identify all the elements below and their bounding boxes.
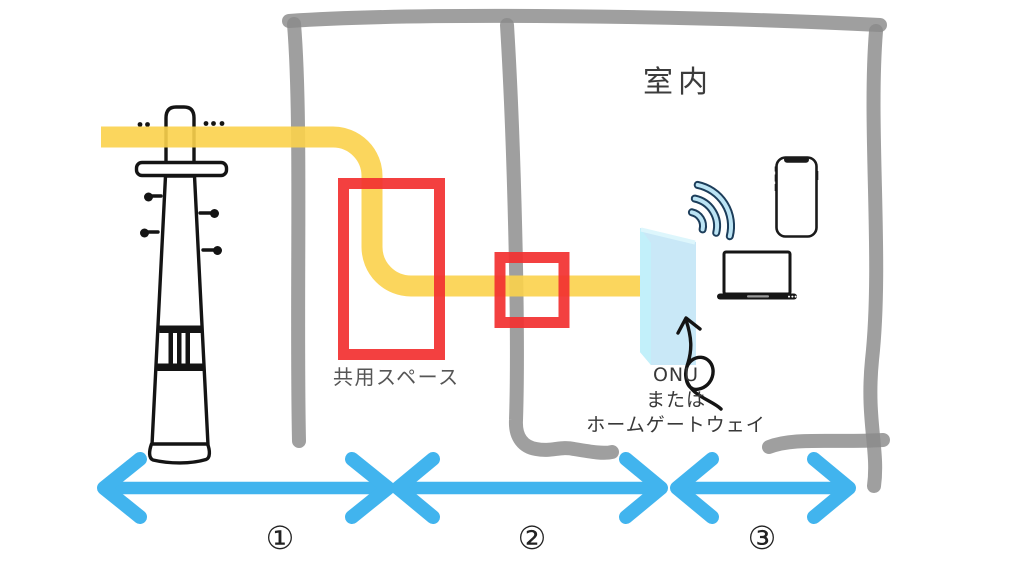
onu-label-line1: ONU bbox=[556, 363, 796, 388]
section-2-arrow bbox=[398, 459, 661, 517]
wall-bottom-right bbox=[769, 440, 883, 447]
section-arrows bbox=[104, 459, 849, 517]
diagram-canvas: 室内 共用スペース ONU または ホームゲートウェイ ① ② ③ bbox=[0, 0, 1024, 576]
onu-box bbox=[640, 228, 696, 365]
wall-top bbox=[289, 16, 880, 25]
onu-label-line2: または bbox=[556, 388, 796, 413]
wifi-icon bbox=[692, 185, 731, 236]
smartphone-icon bbox=[775, 157, 819, 237]
room-label: 室内 bbox=[643, 57, 713, 101]
utility-pole-icon bbox=[137, 107, 227, 463]
wall-right bbox=[870, 31, 876, 486]
onu-label-line3: ホームゲートウェイ bbox=[556, 413, 796, 438]
diagram-drawing bbox=[0, 0, 1024, 576]
wall-left bbox=[294, 24, 299, 441]
section-2-label: ② bbox=[518, 519, 547, 557]
shared-space-label: 共用スペース bbox=[333, 361, 460, 390]
laptop-icon bbox=[717, 252, 797, 300]
onu-label: ONU または ホームゲートウェイ bbox=[556, 363, 796, 438]
section-1-arrow bbox=[104, 459, 388, 517]
section-3-arrow bbox=[677, 459, 849, 517]
section-1-label: ① bbox=[266, 519, 295, 557]
section-3-label: ③ bbox=[748, 519, 777, 557]
